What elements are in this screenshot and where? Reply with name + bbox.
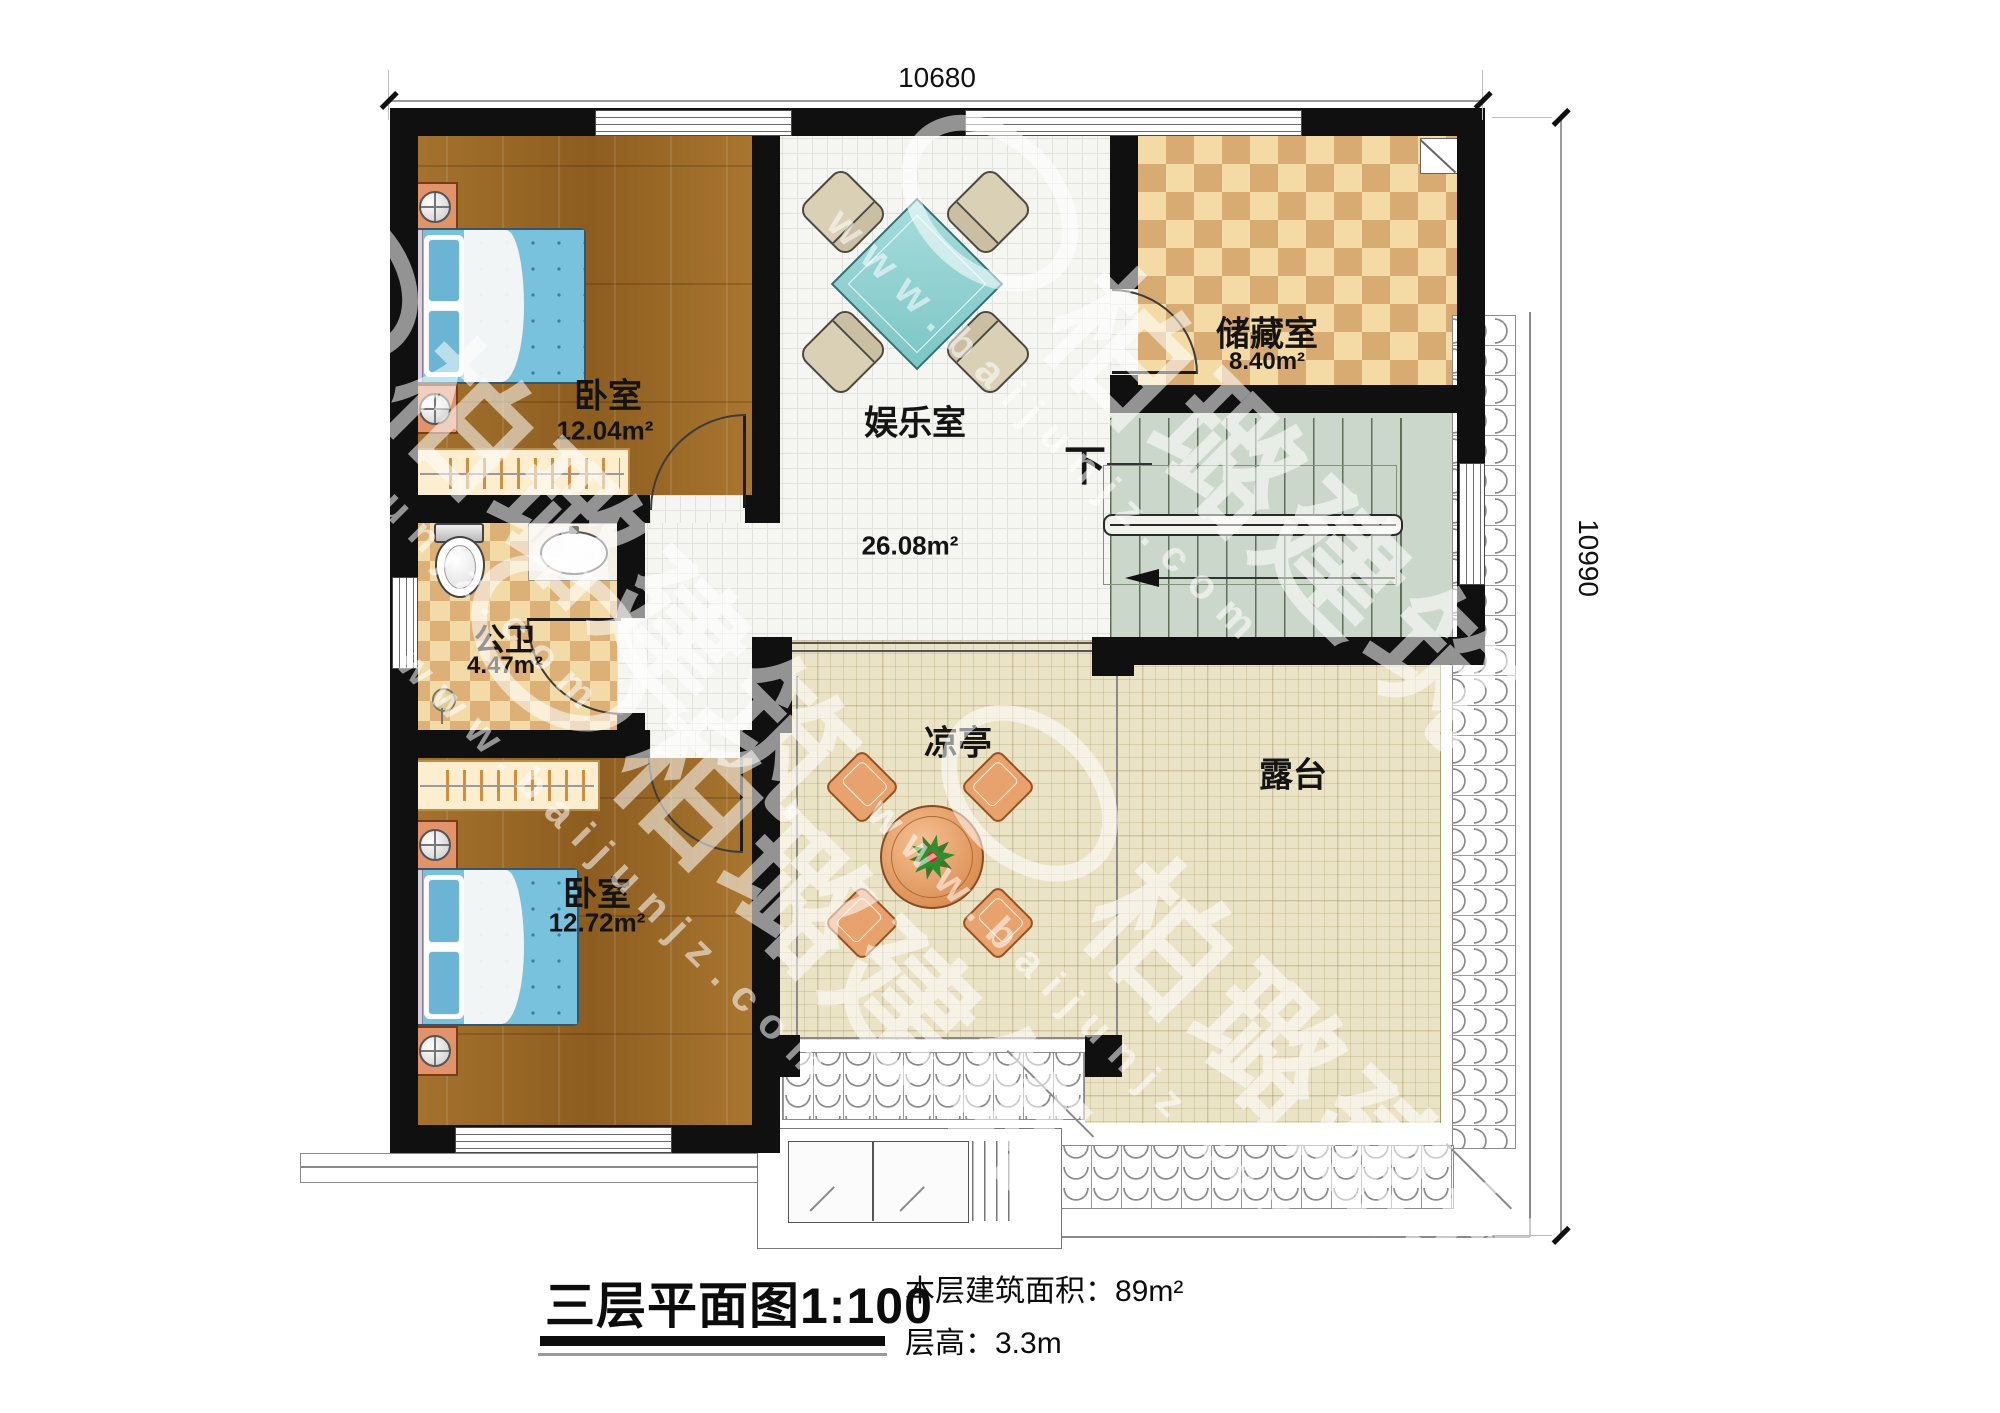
floor-drain	[432, 688, 456, 712]
nightstand-bottom-1	[412, 820, 458, 870]
footer-height-value: 3.3m	[995, 1327, 1062, 1360]
nightstand-top-1	[412, 182, 458, 232]
footer-area-line: 本层建筑面积：89m²	[905, 1266, 1183, 1310]
door-opening-bedroom-bottom	[650, 730, 740, 758]
dimension-ext-top-left	[388, 70, 389, 120]
plan-title: 三层平面图1:100	[545, 1266, 933, 1338]
room-area-bedroom-bottom: 12.72m²	[549, 908, 646, 939]
wardrobe-top	[414, 448, 630, 499]
pavilion-column-top-right	[1092, 637, 1134, 676]
roof-eave-strip-line	[300, 1166, 757, 1168]
bed-pillows	[424, 235, 464, 377]
floor-drain-tail	[441, 708, 443, 724]
wardrobe-bottom	[414, 760, 600, 811]
pavilion-edge-bottom	[798, 1037, 1088, 1039]
pavilion-edge-left	[796, 676, 798, 1035]
room-label-terrace: 露台	[1259, 748, 1327, 797]
nightstand-bottom-2	[412, 1026, 458, 1076]
room-area-entertainment: 26.08m²	[862, 531, 959, 562]
pavilion-round-table	[880, 805, 984, 909]
room-area-bathroom: 4.47m²	[467, 652, 543, 680]
room-label-entertainment: 娱乐室	[864, 396, 966, 445]
bed-pillows	[424, 875, 464, 1019]
pavilion-column-bottom-right	[1085, 1035, 1122, 1077]
window-left-bathroom	[392, 577, 418, 669]
pavilion-edge-right	[1116, 676, 1118, 1035]
wall-bathroom-right-upper	[617, 521, 645, 618]
roof-tiles-below-pavilion	[782, 1052, 1085, 1120]
roof-outline-right	[1529, 312, 1531, 1237]
sink-basin	[540, 531, 608, 575]
dimension-ext-top-right	[1482, 70, 1483, 120]
toilet-bowl	[435, 536, 485, 598]
window-bottom-bedroom	[455, 1127, 672, 1153]
skylight-window-divider	[872, 1141, 874, 1221]
pavilion-column-bottom-left	[752, 1035, 800, 1077]
pavilion-track-line-1	[792, 642, 1092, 644]
window-top-bedroom	[595, 110, 792, 136]
title-underline-thin	[538, 1353, 887, 1356]
footer-area-value: 89m²	[1115, 1275, 1183, 1308]
bed-bottom-bedroom	[410, 868, 579, 1026]
plant-flower	[927, 852, 937, 862]
bed-sheet	[464, 870, 524, 1024]
skylight-window	[788, 1141, 969, 1223]
footer-height-label: 层高：	[905, 1327, 995, 1360]
window-top-storage	[965, 110, 1302, 136]
bed-sheet	[464, 230, 524, 382]
dimension-line-top	[388, 100, 1483, 102]
room-label-pavilion: 凉亭	[924, 716, 992, 765]
room-area-bedroom-top: 12.04m²	[557, 416, 654, 447]
footer-area-label: 本层建筑面积：	[905, 1275, 1115, 1308]
stair-handrail	[1103, 514, 1403, 536]
stair-direction-arrow	[1125, 569, 1159, 587]
stair-arrow-line	[1159, 577, 1395, 579]
floor-plan-canvas: 卧室 12.04m² 娱乐室 26.08m² 储藏室 8.40m² 公卫 4.4…	[0, 0, 2000, 1413]
wall-bedroom-bottom-right	[752, 730, 780, 1153]
pavilion-track-line-2	[792, 650, 1092, 652]
wall-stairs-bottom	[1110, 637, 1485, 665]
title-underline-thick	[540, 1336, 885, 1346]
roof-eave-strip-left	[300, 1153, 759, 1183]
footer-height-line: 层高：3.3m	[905, 1318, 1062, 1362]
stairs-down-label: 下	[1064, 433, 1106, 494]
dimension-width-text: 10680	[898, 62, 976, 94]
dimension-height-text: 10990	[1572, 519, 1604, 597]
room-area-storage: 8.40m²	[1229, 348, 1305, 376]
wall-bedroom-top-right	[752, 108, 780, 521]
skylight-side-lines	[972, 1141, 1012, 1221]
toilet	[430, 523, 488, 599]
nightstand-top-2	[412, 384, 458, 434]
room-label-bedroom-top: 卧室	[574, 369, 642, 418]
wall-top	[390, 108, 1485, 136]
wall-storage-bottom	[1110, 385, 1457, 413]
dimension-line-right	[1560, 117, 1562, 1235]
down-leader-line	[1107, 463, 1152, 465]
bathroom-sink	[528, 523, 619, 581]
roof-miter-corner	[1446, 1143, 1512, 1209]
plan-title-text: 三层平面图	[545, 1278, 800, 1334]
dimension-ext-right-top	[1492, 117, 1552, 118]
dimension-ext-right-bottom	[1492, 1235, 1552, 1236]
bed-top-bedroom	[410, 228, 586, 384]
window-right-stairs	[1459, 463, 1485, 585]
pavilion-column-top-left	[752, 637, 792, 733]
